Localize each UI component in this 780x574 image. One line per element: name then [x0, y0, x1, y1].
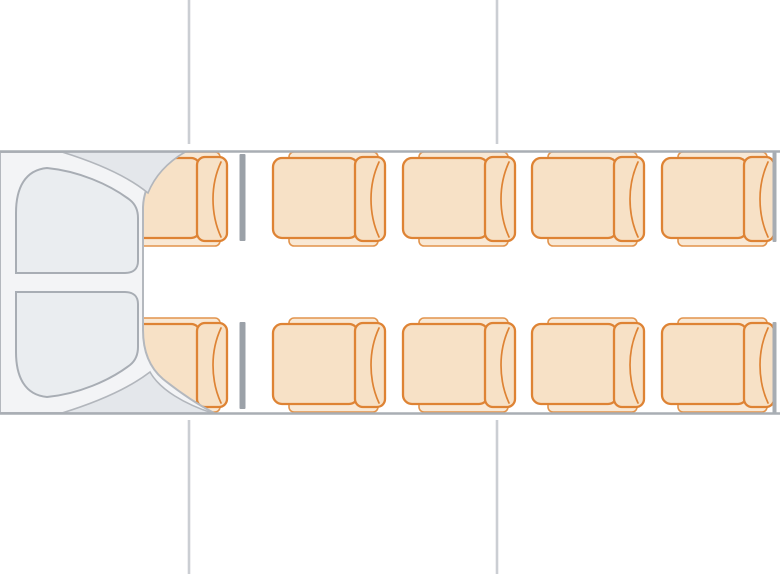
seat-backrest [485, 157, 515, 241]
seat-map-canvas [0, 0, 780, 574]
seat-A3[interactable] [403, 152, 515, 246]
rear-partition-bottom [773, 322, 777, 414]
seat-cushion [532, 324, 617, 404]
seat-cushion [662, 324, 747, 404]
seat-backrest [614, 157, 644, 241]
seat-backrest [744, 323, 774, 407]
seat-backrest [197, 323, 227, 407]
front-partition-top [240, 154, 246, 241]
seat-B4[interactable] [532, 318, 644, 412]
seat-B5[interactable] [662, 318, 774, 412]
seat-cushion [532, 158, 617, 238]
front-partition-bottom [240, 322, 246, 409]
seat-A5[interactable] [662, 152, 774, 246]
seat-backrest [355, 323, 385, 407]
seat-cushion [273, 158, 358, 238]
seat-B2[interactable] [273, 318, 385, 412]
seat-cushion [662, 158, 747, 238]
seat-A2[interactable] [273, 152, 385, 246]
seat-map [0, 0, 780, 574]
seat-backrest [614, 323, 644, 407]
seat-backrest [744, 157, 774, 241]
seat-cushion [273, 324, 358, 404]
rear-partition-top [773, 152, 777, 242]
seat-cushion [403, 158, 488, 238]
seat-B3[interactable] [403, 318, 515, 412]
seat-A4[interactable] [532, 152, 644, 246]
seat-backrest [355, 157, 385, 241]
seat-backrest [485, 323, 515, 407]
seat-cushion [403, 324, 488, 404]
seat-backrest [197, 157, 227, 241]
